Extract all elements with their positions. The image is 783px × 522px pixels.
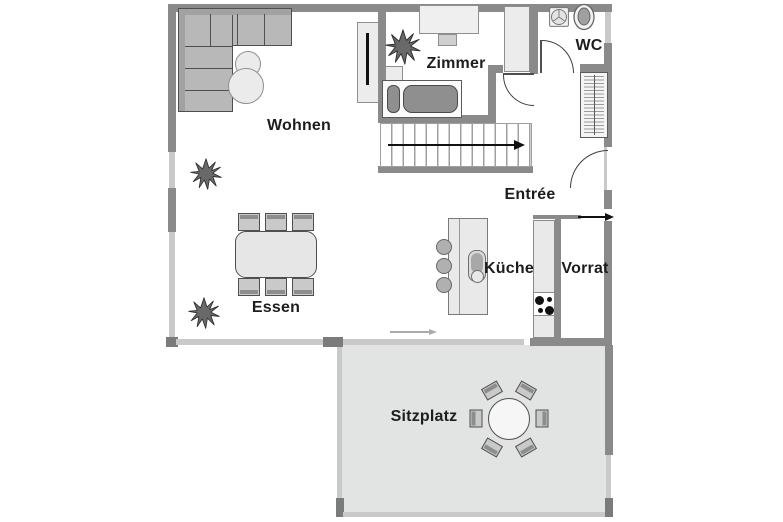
faucet-icon <box>471 270 484 283</box>
wall-post-bottom <box>323 337 343 347</box>
entry-door-arc <box>570 150 608 188</box>
window-left-upper <box>169 152 175 188</box>
entry-arrow-head-icon <box>605 213 614 221</box>
wc-door-arc <box>542 40 574 73</box>
dining-table <box>235 231 317 278</box>
tv-icon <box>366 33 369 85</box>
floor-plan: Wohnen Zimmer WC Entrée Küche Vorrat Ess… <box>0 0 783 522</box>
room-label-kueche: Küche <box>484 260 534 278</box>
sofa-seam <box>185 68 233 69</box>
sofa-seam <box>185 46 233 47</box>
wall-stairs-bottom <box>378 166 533 173</box>
bar-stool <box>436 277 452 293</box>
room-label-wohnen: Wohnen <box>267 117 331 135</box>
bar-stool <box>436 239 452 255</box>
terrace-edge-left <box>337 345 342 498</box>
terrace-edge-right <box>606 455 611 498</box>
room-label-zimmer: Zimmer <box>427 55 486 73</box>
sofa-seam <box>264 14 265 46</box>
plant-icon <box>384 28 422 66</box>
burner-icon <box>538 308 543 313</box>
desk-chair <box>438 34 457 46</box>
terrace-round-table <box>488 398 530 440</box>
burner-icon <box>547 297 552 302</box>
wall-kueche-top <box>533 215 581 219</box>
dining-chair <box>265 213 287 231</box>
terrace-wall-right-post <box>605 498 613 517</box>
wall-bottom-right <box>530 338 612 346</box>
walk-path-arrow <box>390 331 430 333</box>
room-label-wc: WC <box>575 37 602 55</box>
terrace-chair <box>536 410 549 428</box>
room-label-essen: Essen <box>252 299 300 317</box>
dining-chair <box>292 213 314 231</box>
room-label-sitzplatz: Sitzplatz <box>391 408 458 426</box>
stair-direction-arrow <box>388 144 514 146</box>
room-label-entree: Entrée <box>505 186 556 204</box>
bed-mattress <box>403 85 458 113</box>
kitchen-counter <box>533 220 555 338</box>
dining-chair <box>238 213 260 231</box>
island-divider <box>459 219 460 314</box>
terrace-area <box>340 345 606 517</box>
corner-sofa-vertical <box>178 8 233 112</box>
dining-chair <box>292 278 314 296</box>
wall-left-upper <box>168 4 176 152</box>
dining-chair <box>238 278 260 296</box>
wall-right-mid <box>604 190 612 209</box>
bed-pillow <box>387 85 400 113</box>
bar-stool <box>436 258 452 274</box>
walk-path-arrow-head-icon <box>429 329 437 335</box>
closet-divider <box>594 75 595 135</box>
toilet-icon <box>572 3 596 31</box>
burner-icon <box>545 306 554 315</box>
desk <box>419 5 479 34</box>
terrace-chair <box>470 410 483 428</box>
stair-arrow-head-icon <box>514 140 525 150</box>
window-bottom-sliding <box>176 339 524 345</box>
window-right-wc <box>605 12 611 43</box>
wall-kueche-vorrat <box>555 219 561 339</box>
built-in-closet <box>580 72 608 138</box>
dining-chair <box>265 278 287 296</box>
sofa-seam <box>185 90 233 91</box>
wall-right-lower <box>604 221 612 346</box>
window-left-lower <box>169 232 175 337</box>
wall-left-mid <box>168 188 176 232</box>
sofa-seam <box>210 14 211 46</box>
side-table-large <box>228 68 264 104</box>
terrace-wall-right-upper <box>605 345 613 455</box>
washbasin-icon <box>549 7 569 28</box>
entry-direction-arrow <box>578 216 606 218</box>
plant-icon <box>189 157 223 191</box>
burner-icon <box>535 296 544 305</box>
sofa-backrest-top <box>179 9 291 15</box>
wall-zimmer-wc <box>530 4 538 74</box>
wardrobe <box>504 6 530 72</box>
plant-icon <box>187 296 221 330</box>
room-label-vorrat: Vorrat <box>561 260 608 278</box>
zimmer-door-arc <box>503 75 534 106</box>
terrace-edge-bottom <box>343 512 606 517</box>
sofa-seam <box>237 14 238 46</box>
sofa-backrest-left <box>179 9 185 111</box>
